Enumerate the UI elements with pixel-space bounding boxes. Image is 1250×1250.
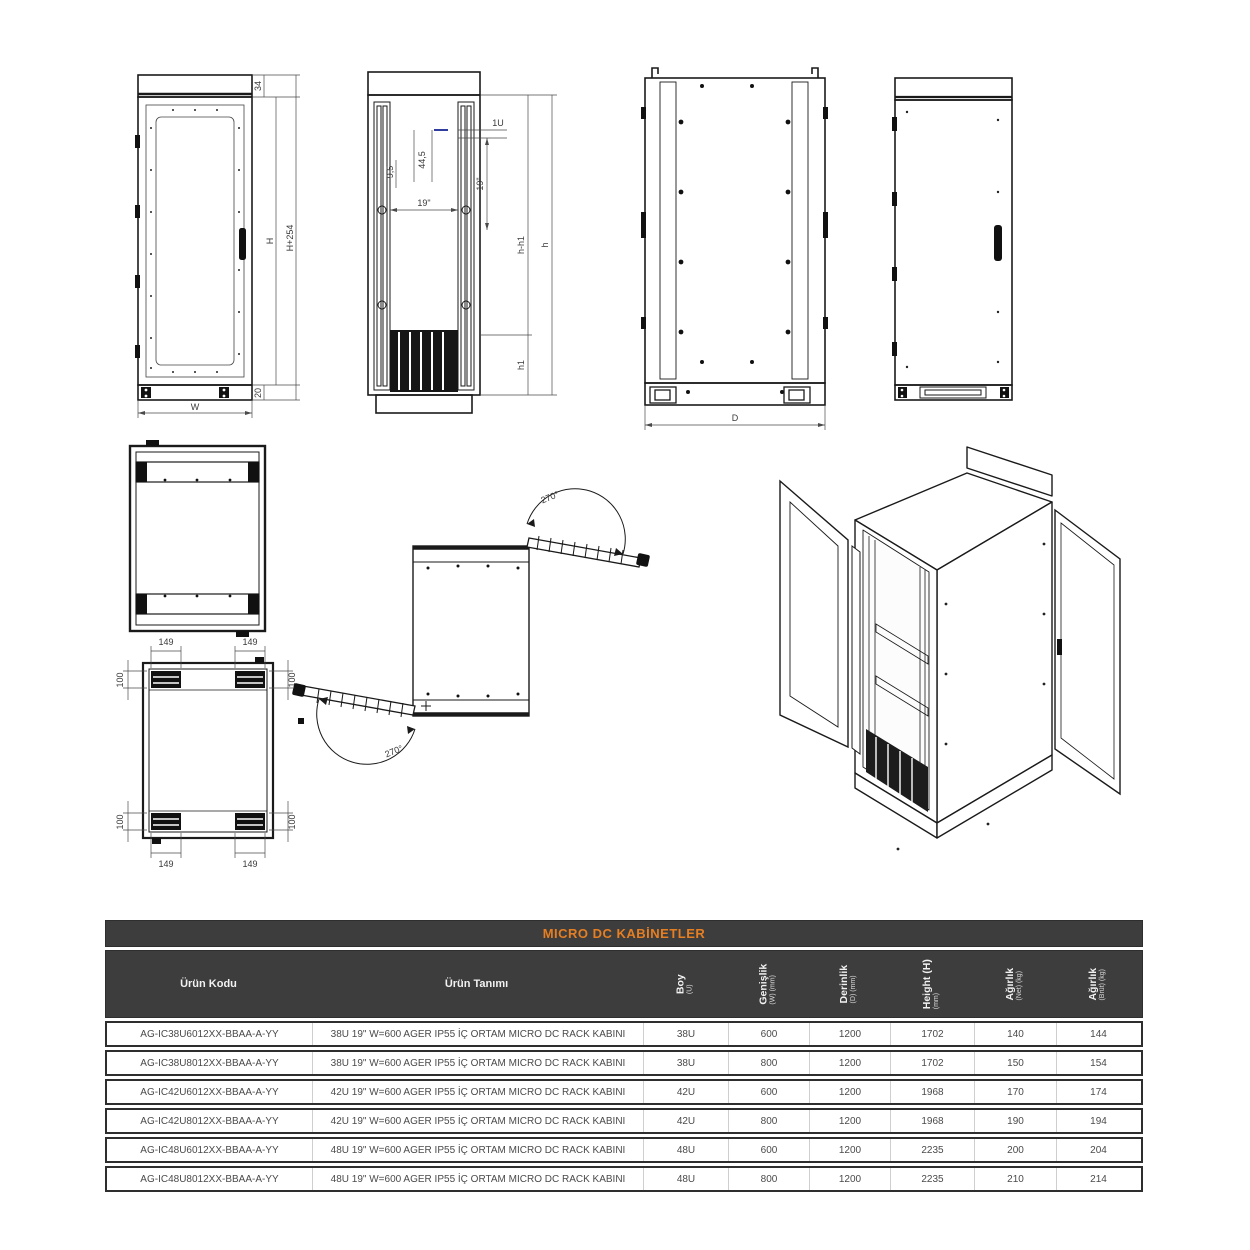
rear-recess xyxy=(920,387,986,398)
dim-label-hh1: h-h1 xyxy=(516,236,526,254)
table-row: AG-IC42U8012XX-BBAA-A-YY 42U 19" W=600 A… xyxy=(105,1108,1143,1134)
cell-genislik: 800 xyxy=(728,1052,809,1074)
drawing-side-view: D xyxy=(632,62,837,442)
cell-brut: 144 xyxy=(1056,1023,1140,1045)
cell-derinlik: 1200 xyxy=(809,1081,890,1103)
dim-label-h254: H+254 xyxy=(285,225,295,252)
col-header-genislik: Genişlik (W) (mm) xyxy=(727,951,808,1017)
cabinet-plan xyxy=(413,546,529,716)
cell-derinlik: 1200 xyxy=(809,1052,890,1074)
bolts xyxy=(641,84,828,394)
col-header-agirlik-net: Ağırlık (Net) (kg) xyxy=(973,951,1055,1017)
dim-label-h1: h1 xyxy=(516,360,526,370)
table-row: AG-IC42U6012XX-BBAA-A-YY 42U 19" W=600 A… xyxy=(105,1079,1143,1105)
header-label: Derinlik xyxy=(839,965,850,1004)
plan-bolts xyxy=(427,565,520,698)
col-header-agirlik-brut: Ağırlık (Brüt) (kg) xyxy=(1055,951,1139,1017)
cell-product-code: AG-IC48U6012XX-BBAA-A-YY xyxy=(107,1139,312,1161)
cell-product-code: AG-IC42U8012XX-BBAA-A-YY xyxy=(107,1110,312,1132)
iso-left-door xyxy=(780,481,860,754)
cell-description: 48U 19" W=600 AGER IP55 İÇ ORTAM MICRO D… xyxy=(312,1168,643,1190)
header-unit: (Brüt) (kg) xyxy=(1099,969,1106,1001)
table-row: AG-IC38U6012XX-BBAA-A-YY 38U 19" W=600 A… xyxy=(105,1021,1143,1047)
cell-derinlik: 1200 xyxy=(809,1023,890,1045)
datasheet-page: 34 H H+254 20 W xyxy=(0,0,1250,1250)
cell-height: 1702 xyxy=(890,1023,974,1045)
top-band xyxy=(136,462,259,482)
cell-boy: 48U xyxy=(643,1168,728,1190)
dim-label-h: h xyxy=(540,242,550,247)
cell-description: 38U 19" W=600 AGER IP55 İÇ ORTAM MICRO D… xyxy=(312,1052,643,1074)
cell-net: 210 xyxy=(974,1168,1056,1190)
screw-holes xyxy=(150,109,240,373)
cell-derinlik: 1200 xyxy=(809,1139,890,1161)
drawing-rear-view xyxy=(885,62,1025,412)
cell-description: 42U 19" W=600 AGER IP55 İÇ ORTAM MICRO D… xyxy=(312,1110,643,1132)
dim-label-w: W xyxy=(191,402,200,412)
table-row: AG-IC38U8012XX-BBAA-A-YY 38U 19" W=600 A… xyxy=(105,1050,1143,1076)
col-header-height: Height (H) (mm) xyxy=(889,951,973,1017)
dim-label-1u: 1U xyxy=(492,118,504,128)
dim-149-tr: 149 xyxy=(242,637,257,647)
cell-product-code: AG-IC38U8012XX-BBAA-A-YY xyxy=(107,1052,312,1074)
dim-100-tl: 100 xyxy=(115,672,125,687)
cell-genislik: 600 xyxy=(728,1139,809,1161)
feet xyxy=(650,387,810,403)
header-unit: (U) xyxy=(686,984,693,994)
cell-boy: 38U xyxy=(643,1023,728,1045)
feet xyxy=(141,387,229,398)
cell-description: 42U 19" W=600 AGER IP55 İÇ ORTAM MICRO D… xyxy=(312,1081,643,1103)
angle-label-top: 270° xyxy=(539,489,560,505)
cell-height: 1968 xyxy=(890,1110,974,1132)
side-channels xyxy=(660,82,808,379)
dim-149-br: 149 xyxy=(242,859,257,869)
door-handle xyxy=(994,225,1002,261)
cell-boy: 42U xyxy=(643,1110,728,1132)
dim-label-445: 44,5 xyxy=(417,151,427,169)
cell-height: 1702 xyxy=(890,1052,974,1074)
outline xyxy=(143,663,273,838)
drawing-bottom-view: 149 149 100 100 100 100 149 149 xyxy=(105,628,305,873)
cell-net: 170 xyxy=(974,1081,1056,1103)
cell-description: 38U 19" W=600 AGER IP55 İÇ ORTAM MICRO D… xyxy=(312,1023,643,1045)
dim-100-bl: 100 xyxy=(115,814,125,829)
drawing-top-view xyxy=(120,436,275,641)
dim-label-20: 20 xyxy=(253,388,263,398)
drawing-front-view: 34 H H+254 20 W xyxy=(118,60,313,425)
col-header-derinlik: Derinlik (D) (mm) xyxy=(808,951,889,1017)
table-row: AG-IC48U8012XX-BBAA-A-YY 48U 19" W=600 A… xyxy=(105,1166,1143,1192)
header-unit: (Net) (kg) xyxy=(1016,971,1023,1001)
dim-label-95: 9,5 xyxy=(385,166,395,179)
cell-brut: 154 xyxy=(1056,1052,1140,1074)
header-label: Boy xyxy=(675,974,686,994)
cell-net: 190 xyxy=(974,1110,1056,1132)
cell-brut: 204 xyxy=(1056,1139,1140,1161)
cell-height: 1968 xyxy=(890,1081,974,1103)
dim-label-34: 34 xyxy=(253,81,263,91)
cell-boy: 38U xyxy=(643,1052,728,1074)
header-unit: (W) (mm) xyxy=(769,975,776,1005)
cell-product-code: AG-IC48U8012XX-BBAA-A-YY xyxy=(107,1168,312,1190)
mount-pads xyxy=(151,671,265,830)
feet xyxy=(898,387,1009,398)
table-title: MICRO DC KABİNETLER xyxy=(105,920,1143,947)
col-header-urun-kodu: Ürün Kodu xyxy=(106,951,311,1017)
dim-100-br: 100 xyxy=(287,814,297,829)
cell-description: 48U 19" W=600 AGER IP55 İÇ ORTAM MICRO D… xyxy=(312,1139,643,1161)
cell-product-code: AG-IC42U6012XX-BBAA-A-YY xyxy=(107,1081,312,1103)
drawing-rack-view: 1U 44,5 19" 9,5 19" h-h1 h h1 xyxy=(352,60,567,425)
cell-height: 2235 xyxy=(890,1139,974,1161)
cell-brut: 214 xyxy=(1056,1168,1140,1190)
table-row: AG-IC48U6012XX-BBAA-A-YY 48U 19" W=600 A… xyxy=(105,1137,1143,1163)
cell-height: 2235 xyxy=(890,1168,974,1190)
header-unit: (mm) xyxy=(933,993,940,1009)
cell-boy: 48U xyxy=(643,1139,728,1161)
table-body: AG-IC38U6012XX-BBAA-A-YY 38U 19" W=600 A… xyxy=(105,1021,1143,1192)
cell-genislik: 600 xyxy=(728,1081,809,1103)
cell-net: 150 xyxy=(974,1052,1056,1074)
dim-label-19v: 19" xyxy=(475,177,485,190)
col-header-urun-tanimi: Ürün Tanımı xyxy=(311,951,642,1017)
header-label: Ağırlık xyxy=(1005,968,1016,1001)
header-label: Ürün Tanımı xyxy=(445,978,508,990)
product-table: MICRO DC KABİNETLER Ürün Kodu Ürün Tanım… xyxy=(105,920,1143,1192)
tab-top xyxy=(255,657,264,663)
door-open-bottom xyxy=(292,683,431,717)
col-header-boy: Boy (U) xyxy=(642,951,727,1017)
door-handle xyxy=(239,228,246,260)
dim-149-bl: 149 xyxy=(158,859,173,869)
cell-net: 200 xyxy=(974,1139,1056,1161)
door-open-top xyxy=(527,536,650,567)
cell-derinlik: 1200 xyxy=(809,1110,890,1132)
cell-derinlik: 1200 xyxy=(809,1168,890,1190)
cell-net: 140 xyxy=(974,1023,1056,1045)
cell-brut: 174 xyxy=(1056,1081,1140,1103)
door-frame xyxy=(146,105,244,377)
cell-genislik: 800 xyxy=(728,1168,809,1190)
cell-brut: 194 xyxy=(1056,1110,1140,1132)
header-unit: (D) (mm) xyxy=(850,975,857,1003)
vent-panel xyxy=(390,330,458,392)
dim-label-h: H xyxy=(265,238,275,245)
cabinet-outline xyxy=(138,75,252,400)
drawing-door-swing: 270° 270° xyxy=(283,458,668,798)
tab-bottom xyxy=(152,838,161,844)
table-header: Ürün Kodu Ürün Tanımı Boy (U) Genişlik (… xyxy=(105,950,1143,1018)
outline xyxy=(130,446,265,631)
dim-149-tl: 149 xyxy=(158,637,173,647)
cell-boy: 42U xyxy=(643,1081,728,1103)
header-label: Ağırlık xyxy=(1088,968,1099,1001)
dim-label-d: D xyxy=(732,413,739,423)
header-label: Ürün Kodu xyxy=(180,978,237,990)
screw-holes xyxy=(906,111,999,368)
cell-product-code: AG-IC38U6012XX-BBAA-A-YY xyxy=(107,1023,312,1045)
dim-label-19h: 19" xyxy=(417,198,430,208)
cabinet-outline xyxy=(645,68,825,405)
top-tab xyxy=(146,440,159,446)
drawing-isometric-view xyxy=(748,424,1173,869)
dimension-lines xyxy=(138,75,300,418)
iso-right-door xyxy=(1055,510,1120,794)
cell-genislik: 600 xyxy=(728,1023,809,1045)
header-label: Genişlik xyxy=(758,964,769,1005)
header-label: Height (H) xyxy=(922,959,933,1009)
cell-genislik: 800 xyxy=(728,1110,809,1132)
bottom-band xyxy=(136,594,259,614)
